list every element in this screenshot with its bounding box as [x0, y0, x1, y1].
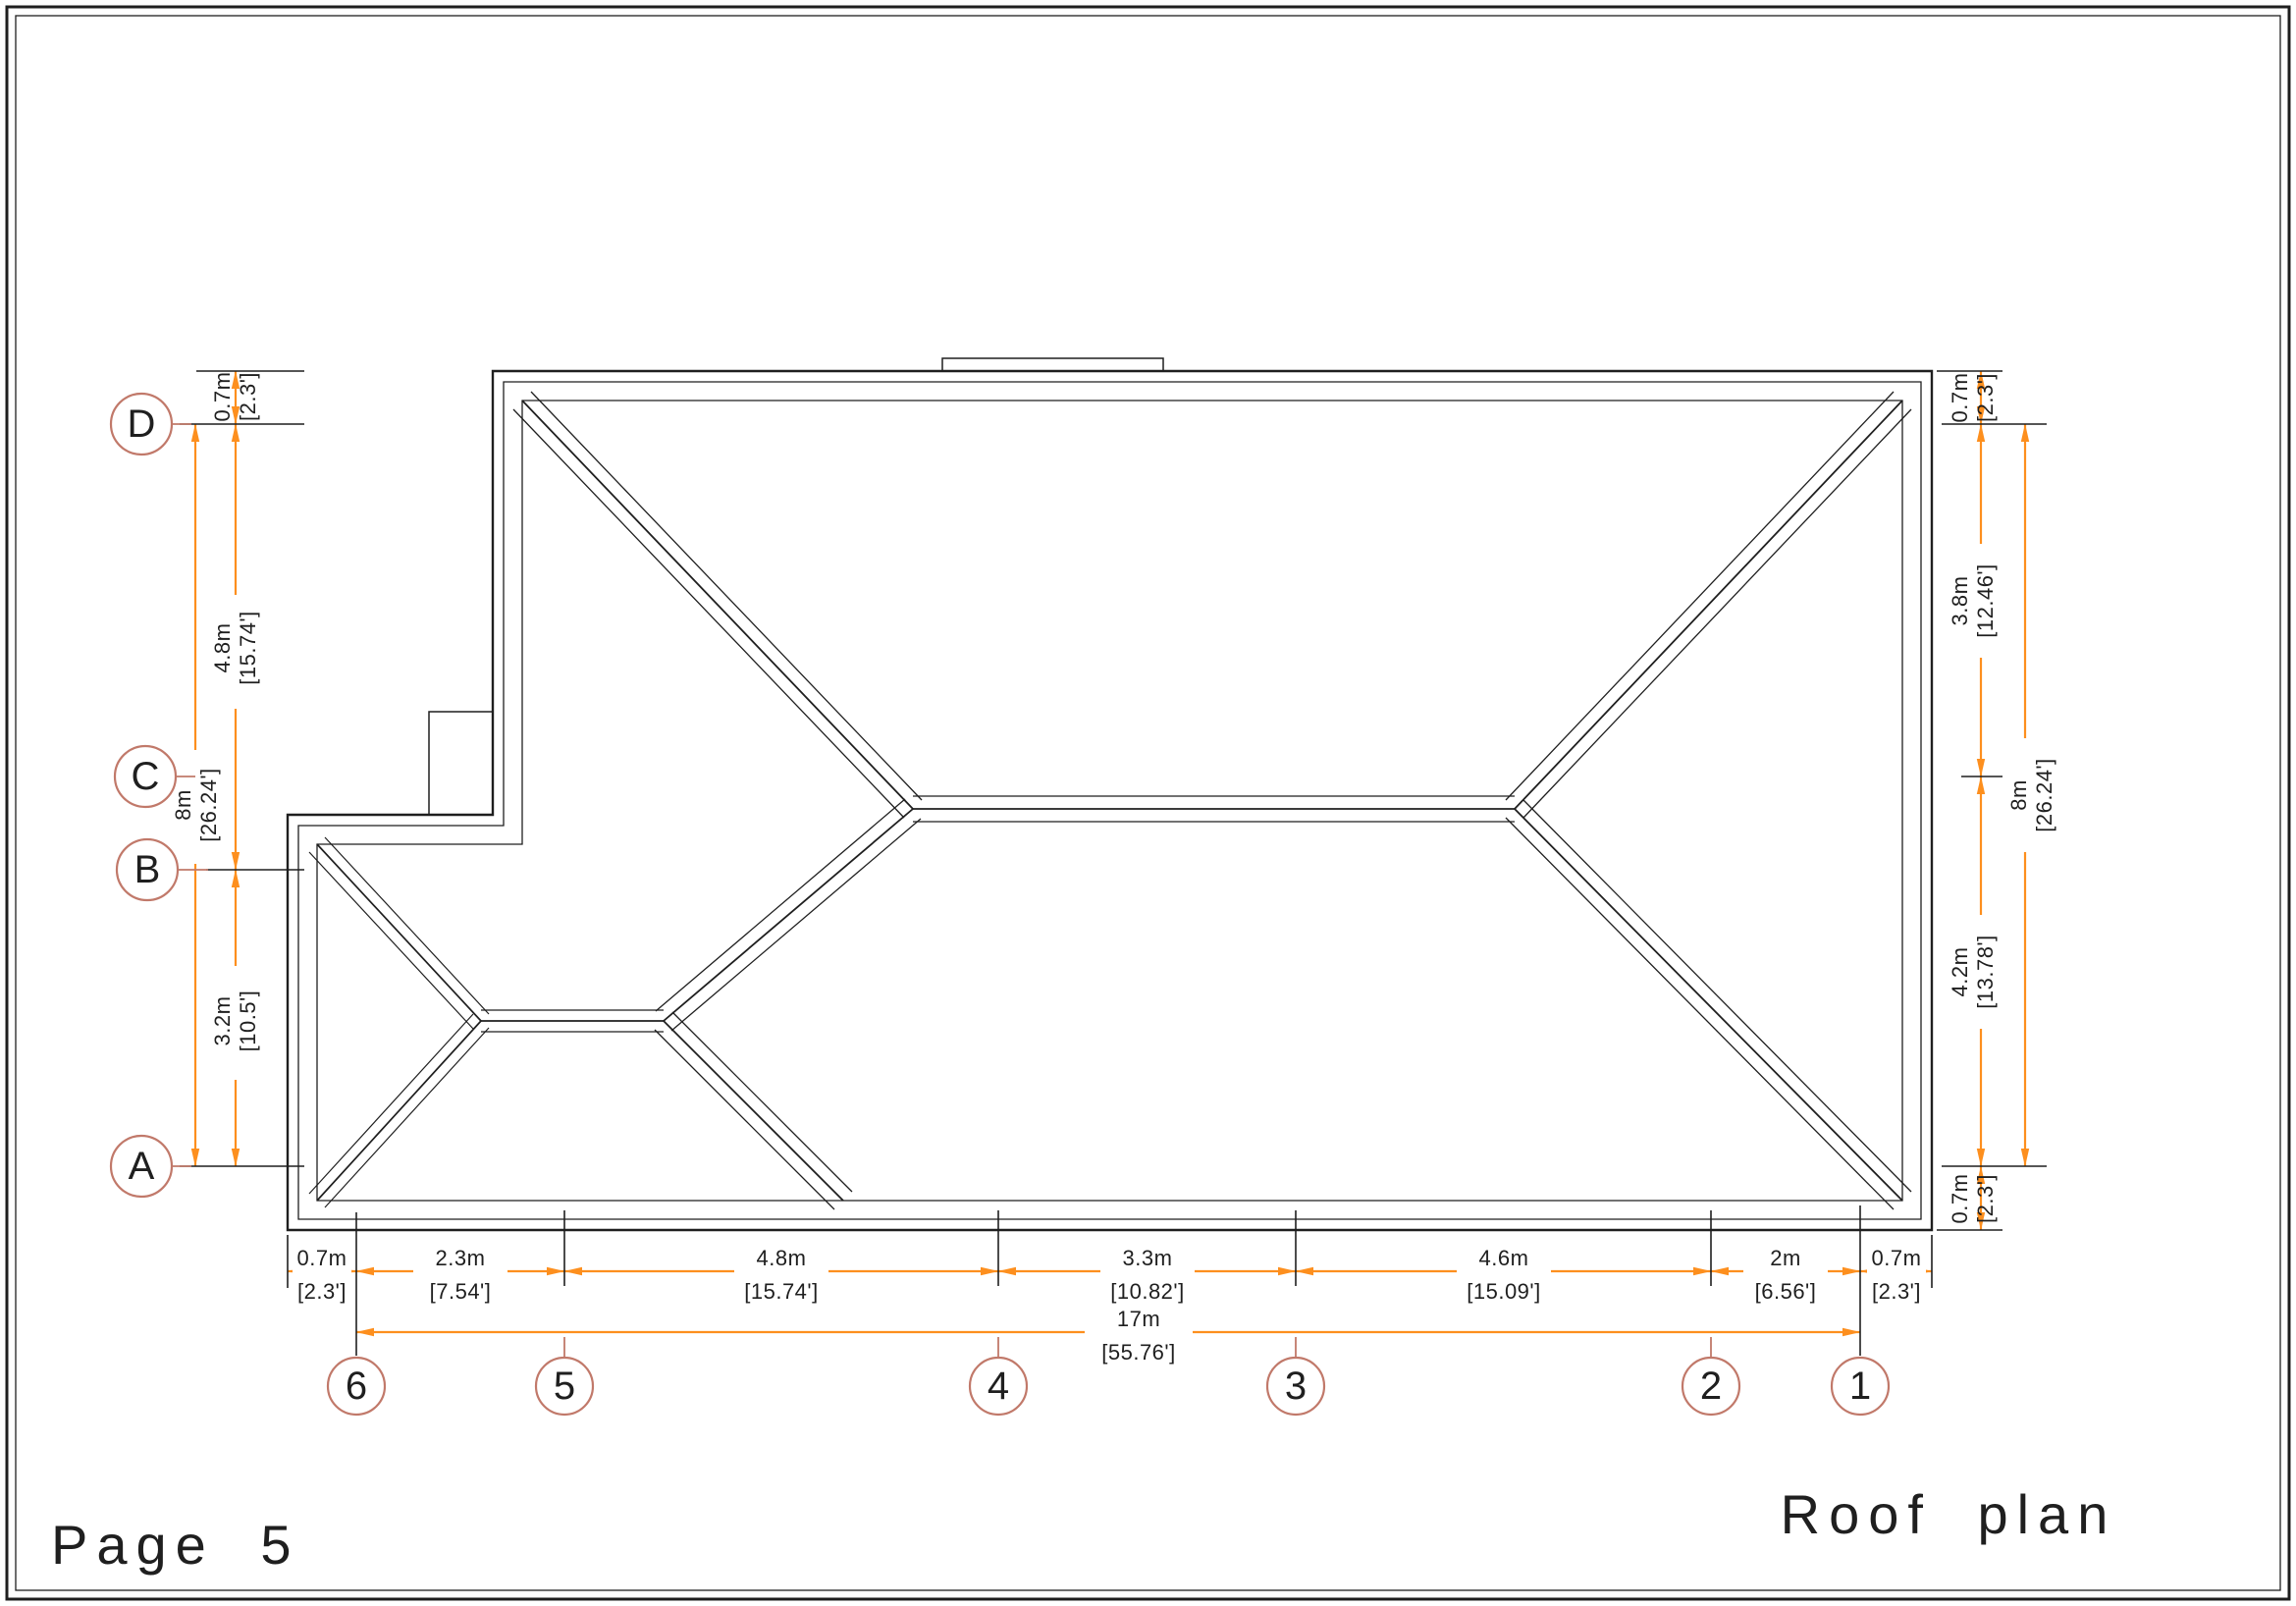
dim-left-overall-ft: [26.24'] [196, 768, 221, 841]
dim-bottom-5-ft: [6.56'] [1755, 1279, 1817, 1304]
extension-ridge-line [481, 1010, 664, 1032]
dimension-lines [195, 371, 2025, 1332]
dim-right-2-ft: [13.78'] [1973, 935, 1998, 1008]
roof-plan-drawing: D C B A 6 5 4 3 2 1 0.7m [2.3'] 4.8m [15… [0, 0, 2296, 1606]
dim-bottom-4-ft: [15.09'] [1467, 1279, 1540, 1304]
grid-row-label-C: C [132, 755, 160, 798]
grid-col-label-1: 1 [1849, 1365, 1871, 1408]
dim-left-2-ft: [10.5'] [236, 990, 260, 1052]
hip-line-southwest [656, 799, 921, 1031]
dim-left-overall-m: 8m [171, 789, 195, 821]
dim-bottom-overall-ft: [55.76'] [1101, 1340, 1175, 1365]
dim-right-2-m: 4.2m [1948, 947, 1972, 997]
dim-bottom-2-m: 4.8m [757, 1246, 807, 1270]
drawing-title: Roof plan [1781, 1483, 2117, 1545]
valley-line [655, 1012, 852, 1209]
main-ridge-line [913, 796, 1515, 822]
dim-bottom-1-m: 2.3m [436, 1246, 486, 1270]
extension-hip-southwest [309, 1014, 489, 1207]
page-number-label: Page 5 [51, 1514, 300, 1576]
label-backgrounds [172, 544, 2060, 1345]
witness-lines [180, 371, 2047, 1356]
dim-right-overall-ft: [26.24'] [2032, 758, 2056, 831]
drawing-sheet: D C B A 6 5 4 3 2 1 0.7m [2.3'] 4.8m [15… [0, 0, 2296, 1606]
dim-bottom-1-ft: [7.54'] [430, 1279, 492, 1304]
left-roof-projection [429, 712, 493, 815]
hip-line-southeast [1506, 800, 1911, 1209]
dim-left-1-m: 4.8m [210, 623, 235, 673]
dim-left-1-ft: [15.74'] [236, 611, 260, 684]
grid-row-label-A: A [129, 1145, 155, 1188]
dim-left-2-m: 3.2m [210, 996, 235, 1046]
top-roof-vent [942, 358, 1163, 371]
dim-right-1-ft: [12.46'] [1973, 563, 1998, 637]
dim-bottom-overall-m: 17m [1117, 1307, 1160, 1331]
grid-col-label-2: 2 [1700, 1365, 1722, 1408]
dim-left-0: 0.7m [2.3'] [210, 372, 260, 422]
dim-left-2: 3.2m [10.5'] [210, 990, 260, 1052]
dim-right-3-ft: [2.3'] [1973, 1174, 1998, 1223]
dim-bottom-4-m: 4.6m [1479, 1246, 1529, 1270]
dim-bottom-6-ft: [2.3'] [1872, 1279, 1921, 1304]
hip-line-northeast [1506, 392, 1911, 818]
dim-right-3: 0.7m [2.3'] [1948, 1174, 1998, 1224]
dim-left-0-ft: [2.3'] [236, 372, 260, 421]
dim-right-0-ft: [2.3'] [1973, 373, 1998, 422]
grid-row-label-B: B [134, 848, 161, 891]
grid-col-label-6: 6 [346, 1365, 367, 1408]
dim-bottom-5-m: 2m [1770, 1246, 1801, 1270]
dim-bottom-0-m: 0.7m [297, 1246, 347, 1270]
dim-bottom-6-m: 0.7m [1872, 1246, 1922, 1270]
dim-bottom-2-ft: [15.74'] [744, 1279, 818, 1304]
hip-line-northwest [513, 392, 922, 818]
grid-col-label-3: 3 [1285, 1365, 1307, 1408]
dim-right-0-m: 0.7m [1948, 373, 1972, 423]
dim-bottom-3-m: 3.3m [1123, 1246, 1173, 1270]
dim-bottom-0-ft: [2.3'] [297, 1279, 347, 1304]
dim-bottom-3-ft: [10.82'] [1110, 1279, 1184, 1304]
dim-right-0: 0.7m [2.3'] [1948, 373, 1998, 423]
dim-right-3-m: 0.7m [1948, 1174, 1972, 1224]
grid-col-label-5: 5 [554, 1365, 575, 1408]
dim-right-1-m: 3.8m [1948, 576, 1972, 626]
dim-right-overall-m: 8m [2006, 779, 2031, 811]
grid-col-label-4: 4 [988, 1365, 1009, 1408]
dim-left-0-m: 0.7m [210, 372, 235, 422]
roof-outline [288, 371, 1932, 1230]
extension-hip-northwest [309, 837, 489, 1029]
grid-row-label-D: D [128, 402, 156, 446]
